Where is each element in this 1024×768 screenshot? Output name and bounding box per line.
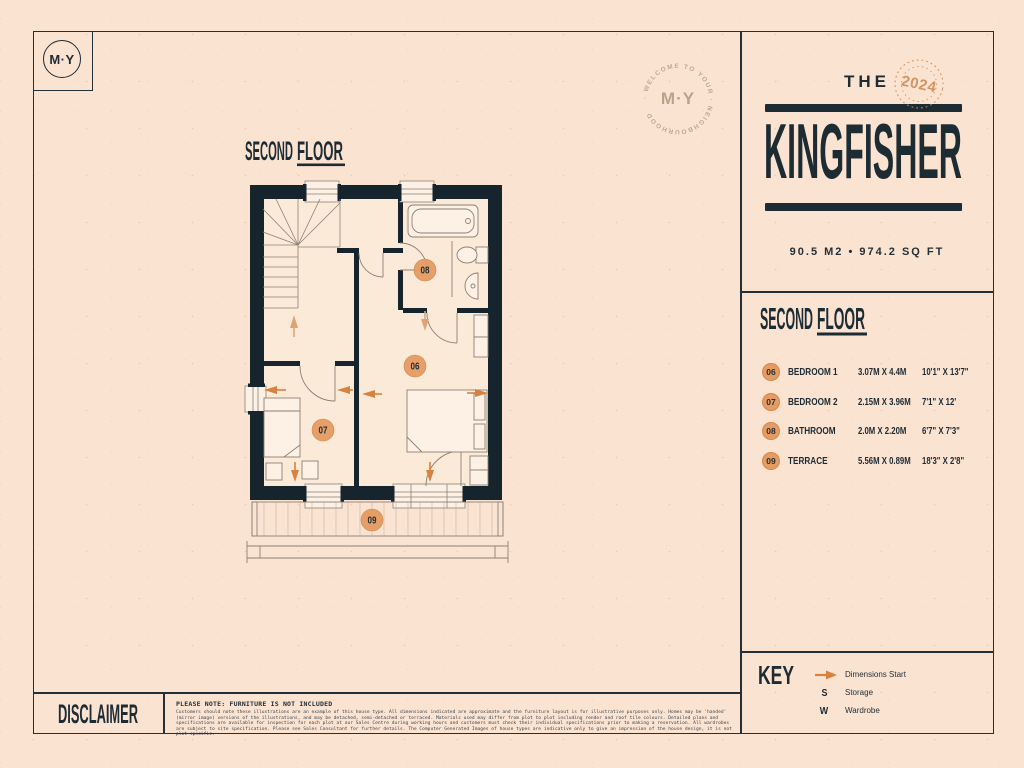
room-imperial-dims: 10'1" X 13'7": [922, 366, 968, 378]
bathtub-icon: [408, 205, 478, 237]
plan-heading-word1: SECOND: [245, 140, 293, 166]
room-row-terrace: 09 TERRACE 5.56M X 0.89M 18'3" X 2'8": [740, 447, 994, 477]
cupboard-icon: [474, 315, 488, 337]
key-symbol-wardrobe: W: [820, 705, 828, 717]
disclaimer-title: DISCLAIMER: [33, 695, 163, 731]
room-number-badge: 08: [762, 422, 780, 440]
wardrobe-icon: [470, 456, 488, 470]
room-metric-dims: 3.07M X 4.4M: [858, 366, 906, 378]
room-row-bedroom2: 07 BEDROOM 2 2.15M X 3.96M 7'1" X 12': [740, 388, 994, 418]
nightstand-icon: [266, 463, 282, 480]
dimensions-arrow-icon: [815, 670, 837, 680]
room-name: TERRACE: [788, 455, 828, 467]
room-number-badge: 07: [762, 393, 780, 411]
nightstand-icon: [302, 461, 318, 479]
panel-heading-word2: FLOOR: [817, 306, 865, 336]
floor-plan: 08 06 07 09: [240, 175, 520, 575]
disclaimer-divider-vert: [163, 692, 165, 733]
panel-floor-heading: SECOND FLOOR: [760, 306, 875, 340]
title-kingfisher: KINGFISHER: [763, 114, 963, 182]
plan-heading-word2: FLOOR: [297, 140, 343, 166]
title-bar-bottom: [765, 203, 962, 211]
room-number-badge: 09: [762, 452, 780, 470]
brand-logo-icon: M·Y: [43, 40, 81, 78]
key-label-wardrobe: Wardrobe: [845, 706, 880, 715]
disclaimer-divider-top: [33, 692, 741, 694]
room-row-bathroom: 08 BATHROOM 2.0M X 2.20M 6'7" X 7'3": [740, 417, 994, 447]
stamp-year-text: 2024: [900, 72, 938, 96]
key-label-storage: Storage: [845, 688, 873, 697]
room-imperial-dims: 18'3" X 2'8": [922, 455, 964, 467]
room-imperial-dims: 7'1" X 12': [922, 396, 956, 408]
brand-logo-text: M·Y: [49, 52, 74, 67]
plan-badge-terrace: 09: [368, 516, 377, 527]
room-metric-dims: 5.56M X 0.89M: [858, 455, 911, 467]
disclaimer-body: Customers should note these illustration…: [176, 710, 732, 738]
area-measurement: 90.5 M2 • 974.2 SQ FT: [740, 246, 994, 258]
room-name: BEDROOM 1: [788, 366, 838, 378]
welcome-badge-center-text: M·Y: [661, 89, 695, 108]
disclaimer-note: PLEASE NOTE: FURNITURE IS NOT INCLUDED: [176, 700, 736, 708]
room-imperial-dims: 6'7" X 7'3": [922, 425, 960, 437]
room-name: BEDROOM 2: [788, 396, 838, 408]
room-row-bedroom1: 06 BEDROOM 1 3.07M X 4.4M 10'1" X 13'7": [740, 358, 994, 388]
key-title: KEY: [758, 662, 806, 690]
title-name-text: KINGFISHER: [764, 114, 962, 182]
room-metric-dims: 2.0M X 2.20M: [858, 425, 906, 437]
welcome-badge-icon: · WELCOME TO YOUR · NEIGHBOURHOOD M·Y: [634, 55, 722, 143]
bed2-icon: [264, 398, 300, 457]
plan-badge-bedroom1: 06: [411, 362, 420, 373]
room-number-badge: 06: [762, 363, 780, 381]
key-symbol-storage: S: [822, 687, 828, 699]
plan-badge-bedroom2: 07: [319, 426, 328, 437]
plan-badge-bathroom: 08: [421, 266, 430, 277]
disclaimer-title-text: DISCLAIMER: [58, 699, 138, 729]
stamp-2024-icon: 2024: [886, 51, 952, 117]
panel-divider-key: [740, 651, 994, 653]
title-pre: THE: [740, 72, 994, 92]
plan-floor-heading: SECOND FLOOR: [245, 140, 355, 170]
panel-divider-top: [740, 291, 994, 293]
room-name: BATHROOM: [788, 425, 836, 437]
flyer-page: M·Y · WELCOME TO YOUR · NEIGHBOURHOOD M·…: [0, 0, 1024, 768]
toilet-icon: [476, 247, 488, 263]
key-title-text: KEY: [758, 662, 794, 690]
corner-logo-box: M·Y: [33, 31, 93, 91]
panel-heading-word1: SECOND: [760, 306, 813, 336]
room-metric-dims: 2.15M X 3.96M: [858, 396, 911, 408]
key-label-dimensions: Dimensions Start: [845, 670, 906, 679]
